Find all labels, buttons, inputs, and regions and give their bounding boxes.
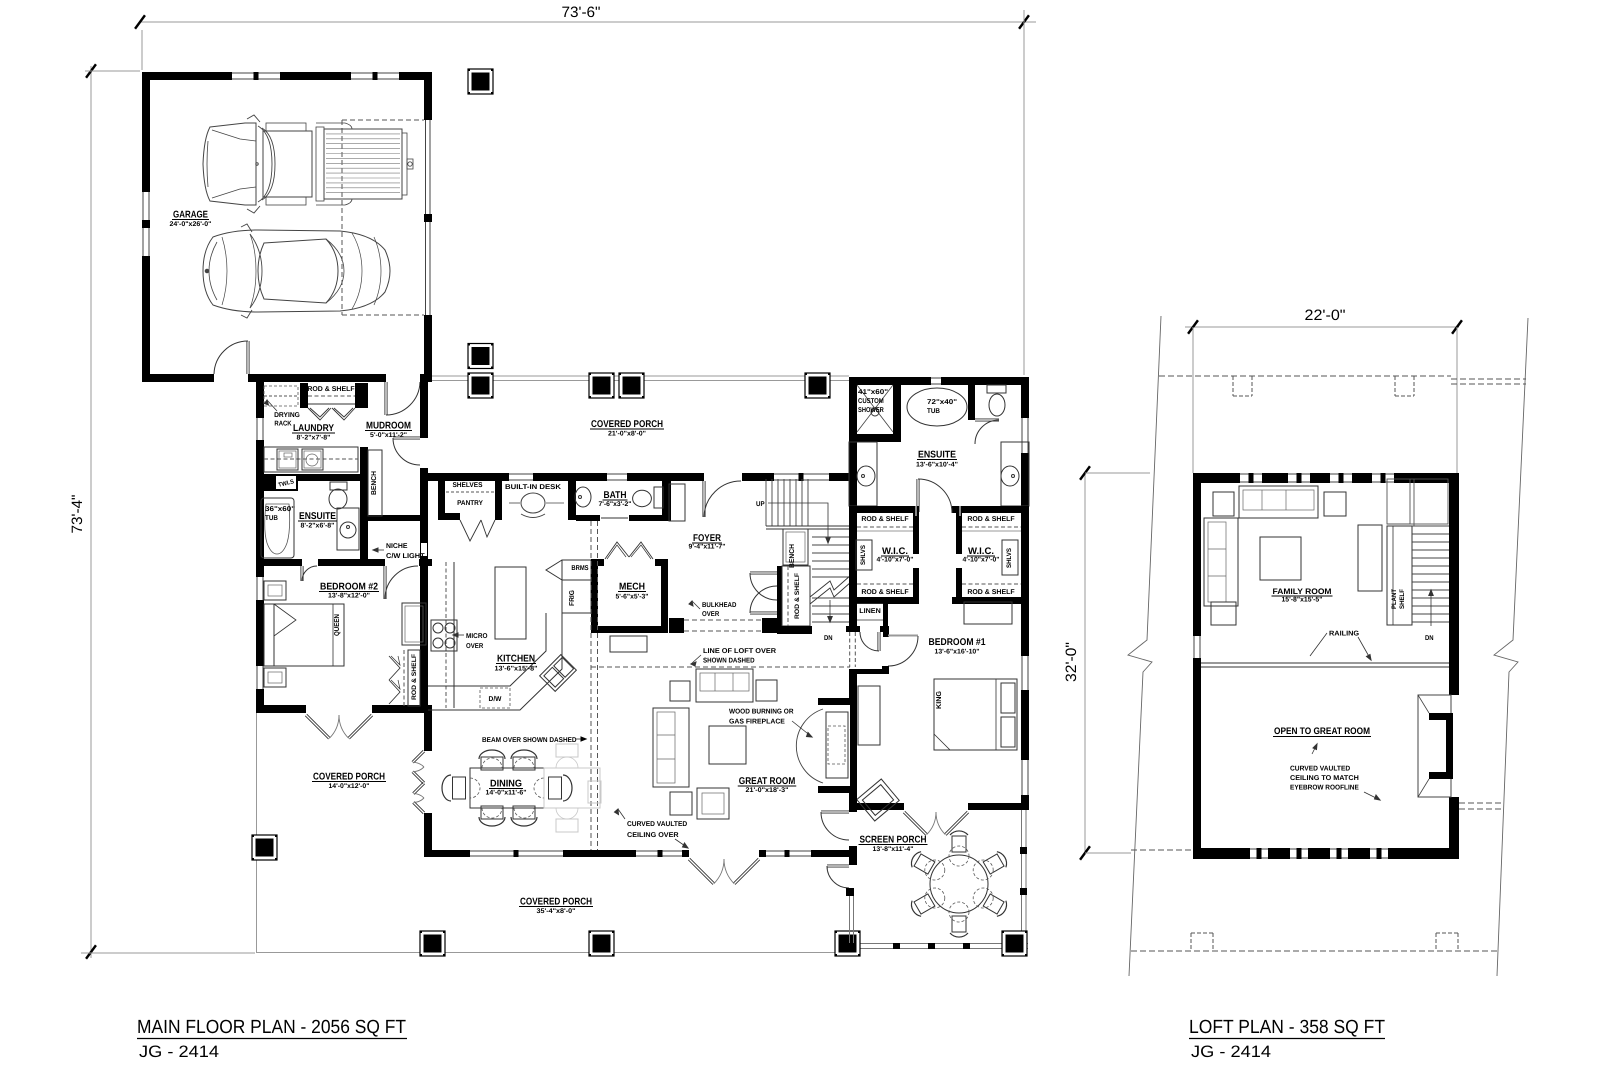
- svg-text:NICHE: NICHE: [386, 543, 408, 550]
- svg-text:DRYING: DRYING: [274, 412, 300, 419]
- svg-text:GAS FIREPLACE: GAS FIREPLACE: [729, 719, 785, 726]
- svg-text:73'-4": 73'-4": [69, 495, 86, 534]
- svg-text:LAUNDRY: LAUNDRY: [293, 423, 334, 434]
- svg-text:DN: DN: [1425, 635, 1434, 642]
- svg-text:SHELF: SHELF: [1399, 589, 1406, 609]
- svg-text:SHLVS: SHLVS: [1006, 547, 1013, 568]
- svg-text:21'-0"x18'-3": 21'-0"x18'-3": [746, 787, 789, 794]
- svg-text:ROD & SHELF: ROD & SHELF: [861, 589, 909, 596]
- svg-text:BEDROOM #2: BEDROOM #2: [320, 582, 378, 593]
- svg-text:PANTRY: PANTRY: [457, 500, 483, 507]
- svg-text:SHLVS: SHLVS: [860, 544, 867, 565]
- svg-text:CURVED VAULTED: CURVED VAULTED: [627, 821, 687, 828]
- svg-text:RACK: RACK: [274, 421, 291, 428]
- svg-text:36"x60": 36"x60": [265, 506, 295, 513]
- svg-text:32'-0": 32'-0": [1063, 642, 1080, 682]
- svg-text:CEILING TO MATCH: CEILING TO MATCH: [1290, 775, 1359, 782]
- svg-text:MUDROOM: MUDROOM: [366, 421, 411, 432]
- svg-text:BEAM OVER SHOWN DASHED: BEAM OVER SHOWN DASHED: [482, 737, 577, 744]
- svg-text:ROD & SHELF: ROD & SHELF: [967, 516, 1015, 523]
- svg-text:FOYER: FOYER: [693, 533, 721, 544]
- svg-text:DN: DN: [824, 635, 833, 642]
- svg-text:8'-2"x6'-8": 8'-2"x6'-8": [301, 523, 335, 530]
- svg-text:GREAT ROOM: GREAT ROOM: [739, 776, 796, 787]
- svg-text:JG - 2414: JG - 2414: [139, 1043, 219, 1061]
- svg-text:GARAGE: GARAGE: [173, 210, 208, 221]
- svg-text:BRMS: BRMS: [571, 565, 588, 572]
- svg-text:22'-0": 22'-0": [1305, 307, 1346, 324]
- svg-text:MECH: MECH: [619, 582, 645, 593]
- svg-text:21'-0"x8'-0": 21'-0"x8'-0": [608, 431, 646, 438]
- svg-text:ROD & SHELF: ROD & SHELF: [307, 386, 355, 393]
- svg-text:KING: KING: [936, 690, 943, 709]
- svg-text:COVERED PORCH: COVERED PORCH: [313, 772, 385, 783]
- svg-text:W.I.C.: W.I.C.: [968, 546, 994, 557]
- svg-text:D/W: D/W: [489, 695, 502, 703]
- svg-text:5'-0"x11'-2": 5'-0"x11'-2": [370, 432, 407, 439]
- svg-text:4'-10"x7'-0": 4'-10"x7'-0": [963, 557, 1000, 564]
- svg-text:13'-8"x11'-4": 13'-8"x11'-4": [873, 846, 914, 853]
- svg-text:C/W LIGHT: C/W LIGHT: [386, 552, 425, 560]
- svg-text:OVER: OVER: [702, 611, 719, 618]
- svg-text:9'-4"x11'-7": 9'-4"x11'-7": [689, 544, 726, 551]
- svg-text:13'-6"x10'-4": 13'-6"x10'-4": [916, 462, 958, 469]
- svg-text:CEILING OVER: CEILING OVER: [627, 832, 679, 839]
- svg-text:OVER: OVER: [466, 643, 483, 650]
- svg-text:SHELVES: SHELVES: [452, 482, 482, 489]
- svg-text:SCREEN PORCH: SCREEN PORCH: [860, 835, 927, 846]
- svg-text:72"x40": 72"x40": [927, 399, 957, 406]
- svg-text:SHOWN DASHED: SHOWN DASHED: [703, 658, 755, 665]
- svg-text:14'-0"x12'-0": 14'-0"x12'-0": [329, 783, 370, 790]
- svg-text:QUEEN: QUEEN: [334, 614, 341, 636]
- svg-text:4'-10"x7'-0": 4'-10"x7'-0": [877, 557, 914, 564]
- svg-text:KITCHEN: KITCHEN: [497, 654, 535, 665]
- svg-text:JG - 2414: JG - 2414: [1191, 1043, 1271, 1061]
- svg-text:PLANT: PLANT: [1391, 589, 1398, 609]
- svg-text:BULKHEAD: BULKHEAD: [702, 602, 736, 609]
- svg-text:CURVED VAULTED: CURVED VAULTED: [1290, 766, 1350, 773]
- svg-text:SHOWER: SHOWER: [858, 407, 884, 414]
- svg-text:13'-6"x16'-10": 13'-6"x16'-10": [935, 649, 980, 656]
- svg-text:CUSTOM: CUSTOM: [858, 398, 884, 405]
- svg-text:15'-8"x15'-5": 15'-8"x15'-5": [1282, 597, 1323, 604]
- svg-text:ENSUITE: ENSUITE: [918, 450, 956, 461]
- svg-text:MAIN FLOOR PLAN - 2056 SQ FT: MAIN FLOOR PLAN - 2056 SQ FT: [137, 1017, 406, 1038]
- svg-text:ENSUITE: ENSUITE: [299, 511, 336, 522]
- svg-text:14'-0"x11'-6": 14'-0"x11'-6": [486, 790, 527, 797]
- svg-text:BEDROOM #1: BEDROOM #1: [929, 637, 986, 648]
- svg-text:5'-6"x5'-3": 5'-6"x5'-3": [616, 594, 649, 601]
- svg-text:TUB: TUB: [927, 408, 940, 415]
- svg-text:LINEN: LINEN: [859, 608, 881, 615]
- svg-text:LOFT PLAN - 358 SQ FT: LOFT PLAN - 358 SQ FT: [1189, 1017, 1385, 1038]
- svg-text:DINING: DINING: [490, 779, 522, 790]
- svg-text:LINE OF LOFT OVER: LINE OF LOFT OVER: [703, 648, 776, 655]
- svg-text:24'-0"x26'-0": 24'-0"x26'-0": [170, 221, 212, 228]
- svg-text:TUB: TUB: [265, 515, 278, 522]
- svg-text:13'-8"x12'-0": 13'-8"x12'-0": [328, 593, 370, 600]
- svg-text:13'-6"x15'-8": 13'-6"x15'-8": [495, 666, 538, 673]
- svg-text:COVERED PORCH: COVERED PORCH: [591, 419, 663, 430]
- svg-text:EYEBROW ROOFLINE: EYEBROW ROOFLINE: [1290, 785, 1359, 792]
- svg-text:ROD & SHELF: ROD & SHELF: [411, 654, 418, 700]
- svg-text:8'-2"x7'-8": 8'-2"x7'-8": [297, 435, 331, 442]
- svg-text:OPEN TO GREAT ROOM: OPEN TO GREAT ROOM: [1274, 726, 1370, 737]
- svg-text:35'-4"x8'-0": 35'-4"x8'-0": [537, 908, 576, 915]
- svg-text:ROD & SHELF: ROD & SHELF: [967, 589, 1015, 596]
- svg-text:ROD & SHELF: ROD & SHELF: [794, 573, 801, 619]
- svg-text:BATH: BATH: [604, 490, 627, 501]
- svg-text:7'-6"x3'-2": 7'-6"x3'-2": [599, 501, 632, 508]
- svg-text:BUILT-IN DESK: BUILT-IN DESK: [505, 484, 561, 491]
- svg-text:ROD & SHELF: ROD & SHELF: [861, 516, 909, 523]
- svg-text:WOOD BURNING OR: WOOD BURNING OR: [729, 709, 794, 716]
- svg-text:FAMILY ROOM: FAMILY ROOM: [1273, 587, 1332, 596]
- svg-text:RAILING: RAILING: [1329, 631, 1360, 638]
- svg-text:BENCH: BENCH: [371, 471, 378, 495]
- svg-text:FRIG: FRIG: [569, 589, 576, 606]
- svg-text:W.I.C.: W.I.C.: [882, 546, 908, 557]
- svg-text:UP: UP: [756, 501, 765, 508]
- svg-text:41"x60": 41"x60": [858, 389, 888, 396]
- svg-text:BENCH: BENCH: [789, 544, 796, 568]
- svg-text:73'-6": 73'-6": [562, 4, 601, 21]
- svg-text:COVERED PORCH: COVERED PORCH: [520, 897, 592, 908]
- svg-text:MICRO: MICRO: [466, 633, 488, 640]
